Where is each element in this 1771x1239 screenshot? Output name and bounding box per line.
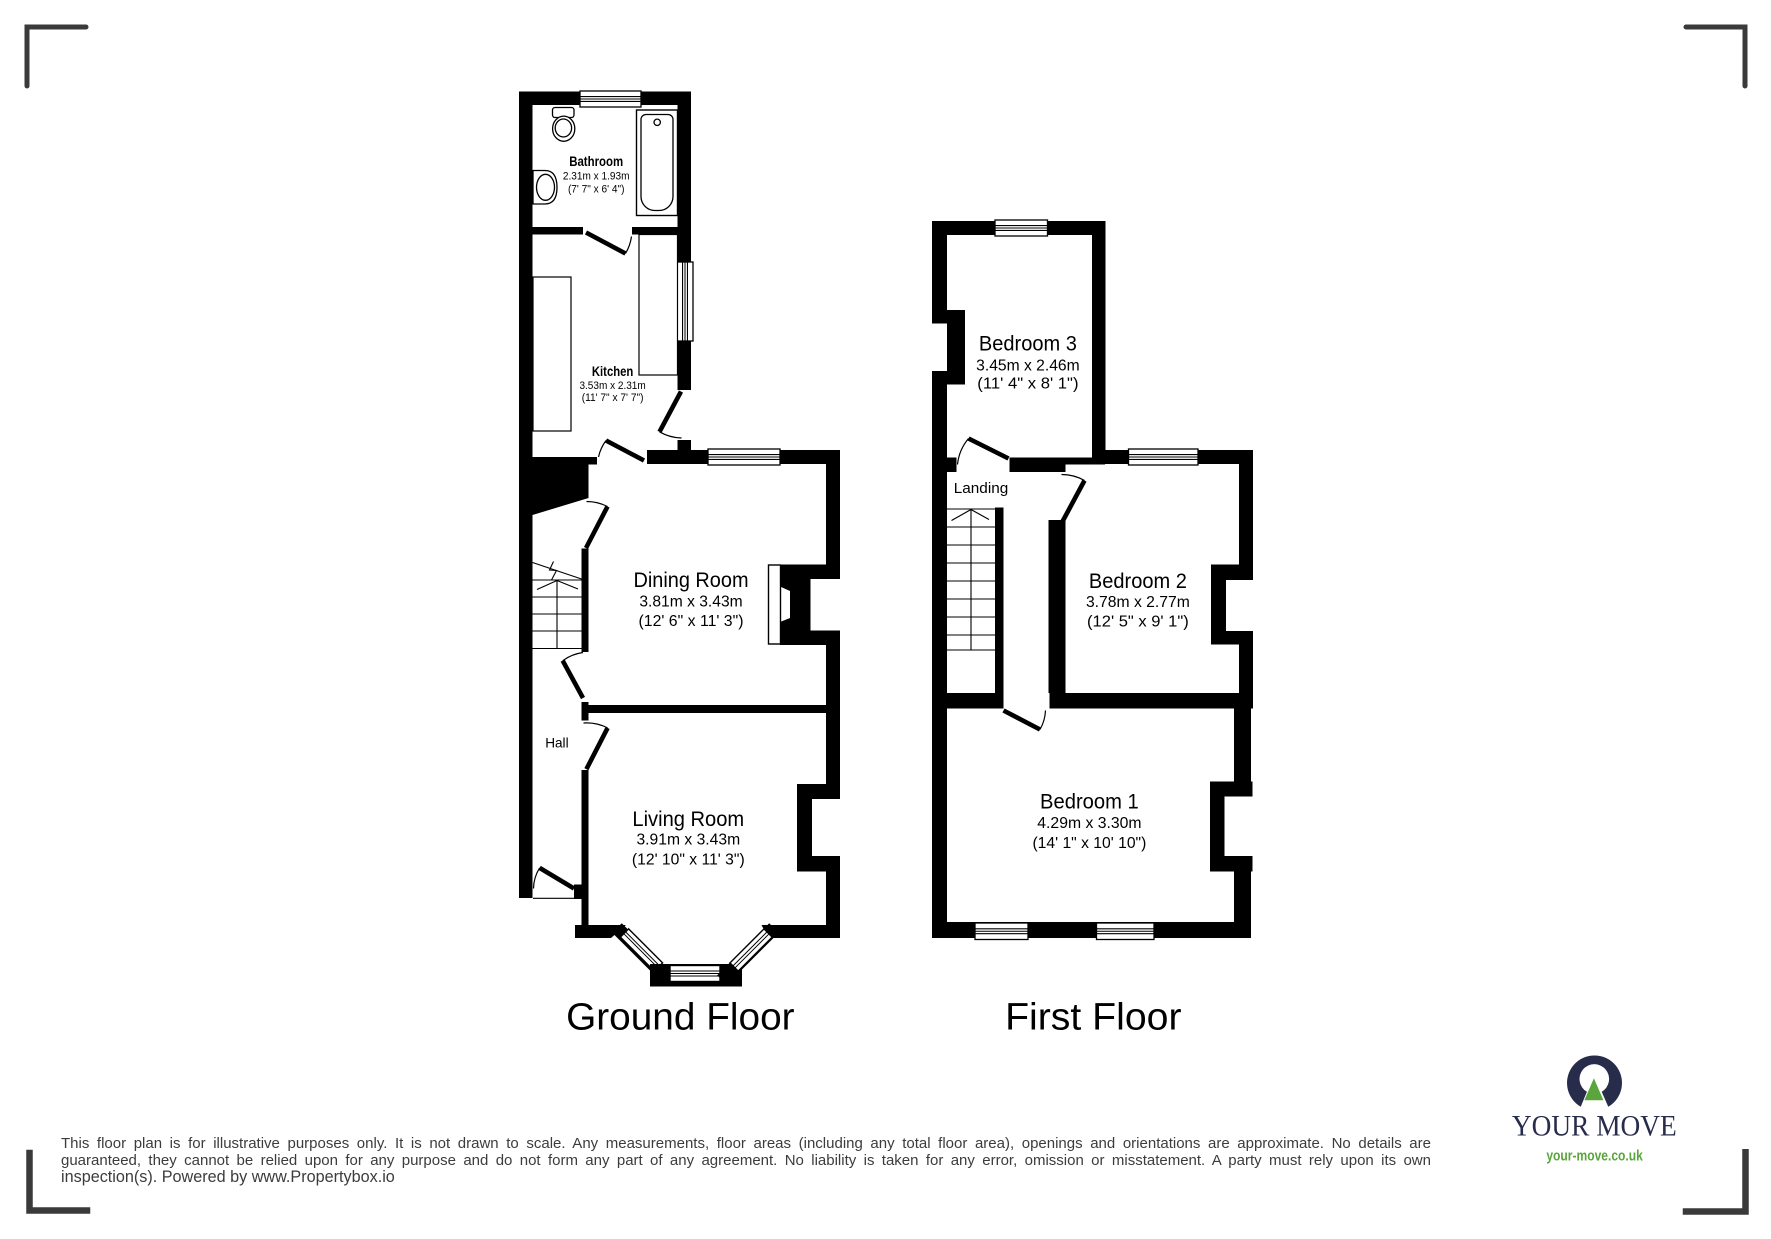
svg-text:3.53m x 2.31m: 3.53m x 2.31m: [579, 380, 645, 392]
svg-text:3.91m x 3.43m: 3.91m x 3.43m: [636, 832, 740, 849]
svg-text:Kitchen: Kitchen: [592, 363, 633, 379]
svg-text:Dining Room: Dining Room: [633, 568, 748, 592]
svg-text:your-move.co.uk: your-move.co.uk: [1546, 1147, 1643, 1164]
svg-text:(7' 7" x 6' 4"): (7' 7" x 6' 4"): [568, 184, 625, 196]
svg-text:Landing: Landing: [954, 480, 1009, 497]
svg-text:(11' 4" x 8' 1"): (11' 4" x 8' 1"): [977, 376, 1078, 393]
svg-text:Ground Floor: Ground Floor: [566, 997, 795, 1039]
svg-text:(12' 6" x 11' 3"): (12' 6" x 11' 3"): [639, 613, 744, 630]
svg-text:First Floor: First Floor: [1005, 997, 1182, 1039]
svg-text:Bedroom 3: Bedroom 3: [979, 331, 1077, 355]
svg-text:Bedroom 2: Bedroom 2: [1089, 569, 1187, 593]
svg-text:3.81m x 3.43m: 3.81m x 3.43m: [639, 594, 742, 611]
svg-text:(14' 1" x 10' 10"): (14' 1" x 10' 10"): [1032, 835, 1146, 852]
svg-text:4.29m x 3.30m: 4.29m x 3.30m: [1037, 815, 1141, 832]
svg-text:3.78m x 2.77m: 3.78m x 2.77m: [1086, 594, 1190, 611]
svg-text:Bathroom: Bathroom: [569, 153, 623, 169]
svg-text:Hall: Hall: [545, 735, 568, 751]
svg-text:3.45m x 2.46m: 3.45m x 2.46m: [976, 358, 1080, 375]
svg-text:2.31m x 1.93m: 2.31m x 1.93m: [563, 170, 630, 182]
svg-text:(11' 7" x 7' 7"): (11' 7" x 7' 7"): [582, 392, 644, 404]
svg-text:Living Room: Living Room: [632, 807, 744, 831]
svg-text:(12' 5" x 9' 1"): (12' 5" x 9' 1"): [1087, 614, 1189, 631]
svg-text:Bedroom 1: Bedroom 1: [1040, 789, 1139, 813]
svg-text:YOUR MOVE: YOUR MOVE: [1512, 1109, 1677, 1142]
svg-text:(12' 10" x 11' 3"): (12' 10" x 11' 3"): [632, 852, 745, 869]
